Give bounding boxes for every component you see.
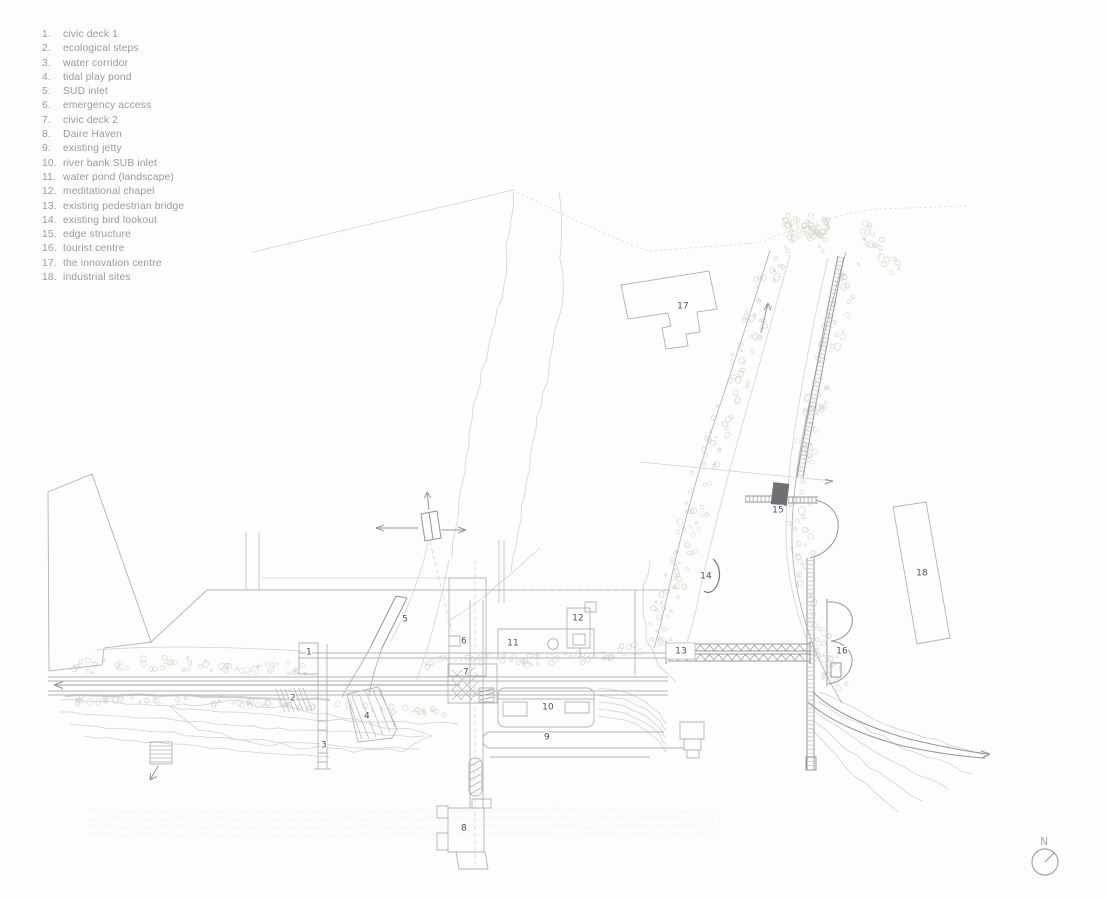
- existing-jetty-band: [483, 732, 664, 757]
- plan-marker-8: 8: [461, 824, 467, 834]
- contour-line: [84, 736, 330, 757]
- site-edge-line: [150, 590, 670, 643]
- plan-marker-11: 11: [507, 639, 519, 649]
- gate-arrows: [376, 492, 466, 533]
- plan-marker-1: 1: [306, 648, 312, 658]
- plan-marker-5: 5: [402, 615, 408, 625]
- plan-marker-15: 15: [772, 506, 784, 516]
- plan-marker-7: 7: [463, 668, 469, 678]
- smudge-row: [88, 817, 714, 821]
- plan-marker-3: 3: [321, 741, 327, 751]
- jetty-steps: [664, 722, 704, 758]
- posts: [246, 532, 504, 603]
- contour-line: [70, 724, 420, 749]
- meditational-chapel-outline: [567, 602, 596, 658]
- contour-line: [511, 192, 563, 572]
- tourist-centre-16: [827, 599, 852, 686]
- sight-line-arrow: [825, 480, 833, 485]
- boundary-line-east: [513, 190, 968, 251]
- bank-terrace: [598, 702, 666, 738]
- plan-marker-9: 9: [544, 733, 550, 743]
- plan-marker-13: 13: [675, 647, 687, 657]
- esplanade-arrow: [54, 682, 460, 689]
- north-needle: [1045, 852, 1055, 862]
- plan-marker-12: 12: [572, 614, 584, 624]
- boundary-line-west: [253, 190, 513, 252]
- site-plan-drawing: 1 2 3 4 5 6 7 8 9 10 11 12 13 14 15 16 1…: [0, 0, 1108, 899]
- north-indicator: N: [1032, 836, 1058, 875]
- plan-marker-6: 6: [461, 637, 467, 647]
- scan-smudge: [88, 809, 714, 837]
- tidal-play-pond-hatch: [350, 689, 395, 740]
- gate-symbol: [421, 511, 441, 541]
- existing-building-west: [48, 474, 151, 671]
- contour-line: [452, 192, 514, 558]
- site-plan-page: 1.civic deck 1 2.ecological steps 3.wate…: [0, 0, 1108, 899]
- bank-terrace: [598, 695, 666, 731]
- north-label: N: [1040, 836, 1048, 848]
- smudge-row: [88, 833, 714, 837]
- smudge-row: [88, 809, 714, 813]
- contour-line: [170, 700, 432, 752]
- contour-line: [60, 699, 458, 724]
- survey-gate: [376, 492, 466, 632]
- innovation-centre-17: [621, 271, 717, 349]
- plan-marker-4: 4: [364, 712, 370, 722]
- smudge-row: [88, 825, 714, 829]
- flow-arrows: [640, 303, 833, 484]
- shore-stairs: [150, 742, 172, 780]
- contour-line: [814, 721, 922, 801]
- path-hook: [810, 500, 838, 558]
- plan-markers: 1 2 3 4 5 6 7 8 9 10 11 12 13 14 15 16 1…: [290, 302, 928, 834]
- edge-structure-15: [745, 482, 818, 506]
- plan-marker-10: 10: [542, 703, 554, 713]
- edge-structure-block: [771, 482, 790, 506]
- water-pond-circle: [548, 639, 559, 650]
- plan-marker-16: 16: [836, 647, 848, 657]
- plan-marker-17: 17: [677, 302, 689, 312]
- bank-terrace: [598, 716, 666, 752]
- plan-marker-2: 2: [290, 694, 296, 704]
- plan-marker-14: 14: [700, 572, 712, 582]
- bank-terrace: [598, 709, 666, 745]
- plan-marker-18: 18: [916, 569, 928, 579]
- contour-line: [447, 548, 540, 622]
- river-banks: [654, 250, 846, 703]
- bank-terrace: [598, 688, 666, 724]
- esplanade: [48, 653, 668, 695]
